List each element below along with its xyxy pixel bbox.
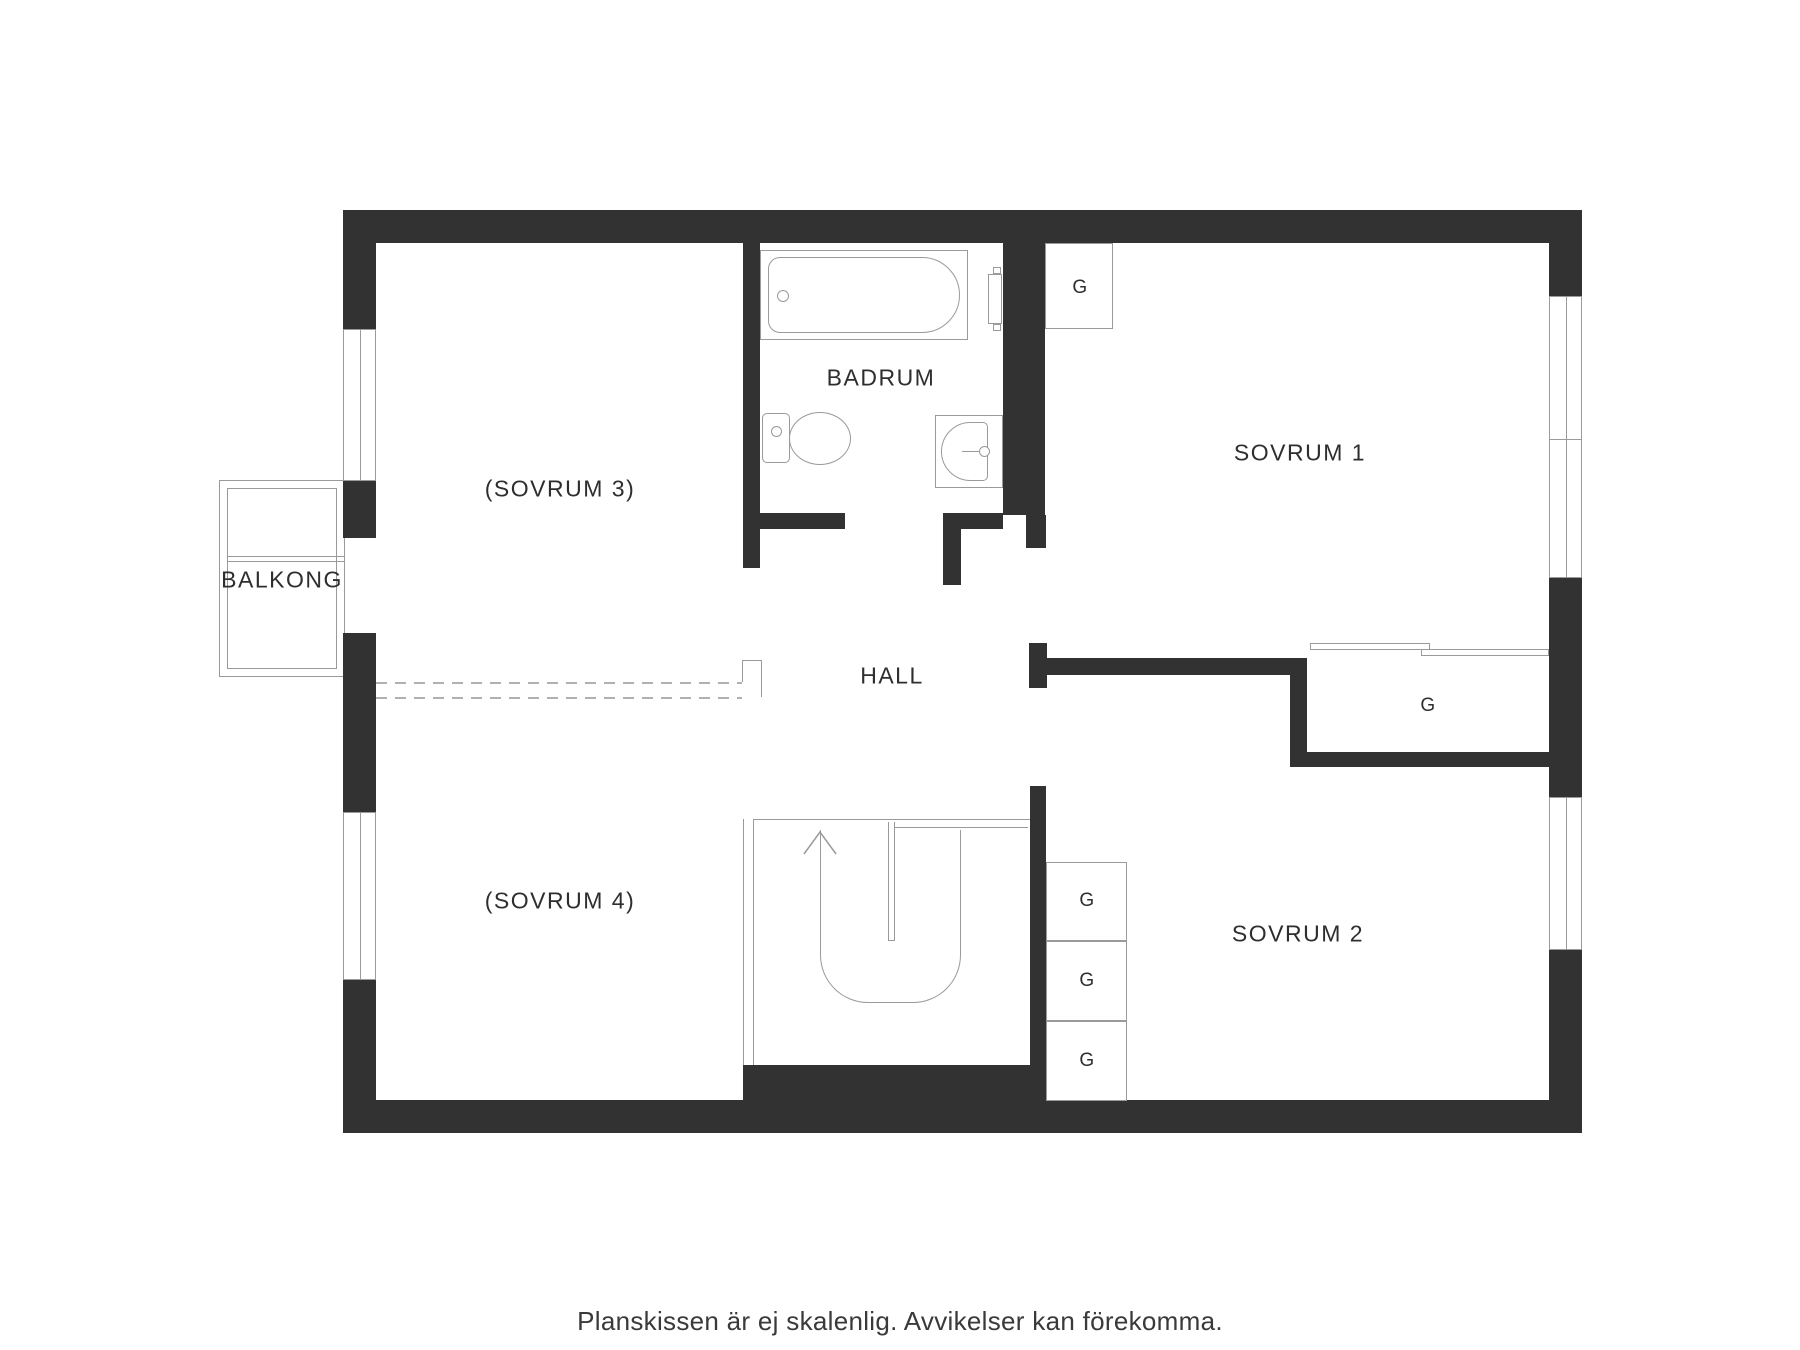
wall-hall-upper bbox=[1029, 658, 1297, 675]
wall-right-seg3 bbox=[1549, 950, 1582, 1133]
wall-bathroom-right bbox=[1003, 243, 1045, 515]
stairwell-top-edge2 bbox=[895, 827, 1028, 828]
dashed-wall-icon bbox=[376, 682, 742, 684]
stairwell-left-edge bbox=[743, 819, 744, 1065]
sink-tap bbox=[979, 446, 990, 457]
room-label-bedroom2: SOVRUM 2 bbox=[1232, 921, 1364, 948]
bathtub-drain bbox=[777, 290, 789, 302]
wall-top bbox=[343, 210, 1582, 243]
closet-label: G bbox=[1079, 970, 1094, 992]
toilet-button bbox=[771, 426, 782, 437]
stairwell-left-edge bbox=[753, 819, 754, 1065]
wall-stairwell-right bbox=[1030, 786, 1046, 1065]
room-label-bedroom4: (SOVRUM 4) bbox=[485, 888, 635, 915]
window-bedroom4 bbox=[343, 812, 376, 980]
radiator-cap bbox=[993, 324, 1001, 331]
wall-right-seg1 bbox=[1549, 210, 1582, 296]
window-bedroom1 bbox=[1549, 296, 1582, 578]
floor-plan: BALKONG G G G G G bbox=[0, 0, 1800, 1350]
wall-left-seg3 bbox=[343, 633, 376, 812]
wall-bottom-stair-section bbox=[743, 1065, 1046, 1101]
dashed-wall-hook bbox=[742, 660, 743, 682]
wall-bathroom-left bbox=[743, 243, 760, 568]
radiator-icon bbox=[988, 274, 1002, 324]
wall-bottom bbox=[343, 1100, 1582, 1133]
closet-label: G bbox=[1072, 277, 1087, 299]
wall-left-seg2 bbox=[343, 481, 376, 538]
closet-label: G bbox=[1079, 1050, 1094, 1072]
balcony-label: BALKONG bbox=[221, 567, 343, 594]
sliding-door-icon bbox=[1310, 643, 1430, 650]
wall-left-seg4 bbox=[343, 980, 376, 1133]
dashed-wall-icon bbox=[376, 697, 742, 699]
wall-bathroom-door-jamb bbox=[943, 513, 961, 585]
stairs-arrow-icon bbox=[802, 826, 838, 856]
closet-label: G bbox=[1420, 695, 1435, 717]
room-label-bathroom: BADRUM bbox=[827, 365, 936, 392]
window-bedroom3 bbox=[343, 329, 376, 481]
toilet-tank bbox=[762, 413, 790, 463]
window-bedroom2 bbox=[1549, 797, 1582, 950]
closet-label: G bbox=[1079, 890, 1094, 912]
toilet-icon bbox=[789, 412, 851, 465]
room-label-bedroom3: (SOVRUM 3) bbox=[485, 476, 635, 503]
disclaimer-caption: Planskissen är ej skalenlig. Avvikelser … bbox=[577, 1306, 1223, 1337]
radiator-cap bbox=[993, 267, 1001, 274]
room-label-hall: HALL bbox=[860, 663, 924, 690]
balcony-door-threshold bbox=[227, 561, 344, 562]
dashed-wall-hook bbox=[761, 660, 762, 697]
wall-left-seg1 bbox=[343, 210, 376, 329]
balcony-door-threshold bbox=[227, 556, 344, 557]
wall-hall-lower bbox=[1297, 752, 1549, 767]
wall-bathroom-right-ext bbox=[1026, 515, 1046, 548]
stairwell-top-edge bbox=[753, 819, 1030, 820]
sliding-door-icon bbox=[1421, 649, 1549, 656]
wall-closet-connector bbox=[1290, 658, 1307, 767]
dashed-wall-hook bbox=[742, 660, 762, 661]
stairs-divider bbox=[888, 822, 895, 941]
wall-right-seg2 bbox=[1549, 578, 1582, 797]
wall-bathroom-left-stub bbox=[760, 513, 845, 529]
bathtub-inner bbox=[768, 257, 960, 333]
room-label-bedroom1: SOVRUM 1 bbox=[1234, 440, 1366, 467]
